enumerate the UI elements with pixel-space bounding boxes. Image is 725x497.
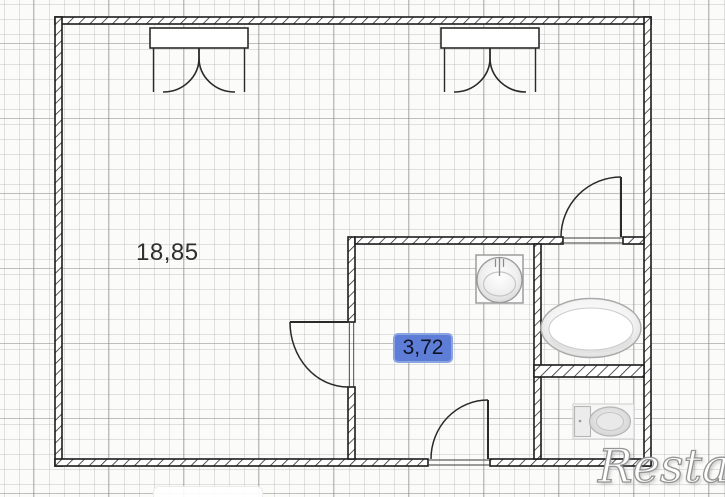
window-icon-left xyxy=(150,28,248,92)
toilet-icon xyxy=(573,404,634,439)
room-area-label-main: 18,85 xyxy=(136,239,199,267)
wall-hall-top-left xyxy=(355,237,563,244)
room-area-label-hall-selected[interactable]: 3,72 xyxy=(393,333,453,363)
fixtures xyxy=(476,255,641,439)
wall-bathroom-left xyxy=(534,244,541,459)
wall-bath-toilet-divider xyxy=(534,365,644,377)
floorplan-canvas: 18,85 3,72 Restate xyxy=(0,0,725,497)
watermark-logo: Restate xyxy=(598,441,725,492)
windows xyxy=(150,28,539,92)
wall-exterior-left xyxy=(55,17,62,466)
bathtub-icon xyxy=(541,299,641,358)
door-swing-icon-hall xyxy=(290,322,354,387)
window-icon-right xyxy=(441,28,539,92)
door-swing-icon-bathroom xyxy=(561,177,623,243)
sink-icon xyxy=(476,255,523,303)
wall-exterior-right xyxy=(644,17,651,466)
room-area-label-hall-text: 3,72 xyxy=(403,336,444,360)
wall-exterior-top xyxy=(55,17,651,24)
door-swing-icon-entrance xyxy=(428,400,490,465)
floorplan-drawing xyxy=(0,0,725,497)
wall-hall-left-lower xyxy=(348,387,355,459)
partial-label-box xyxy=(153,486,263,497)
wall-exterior-bottom-left xyxy=(55,459,428,466)
wall-hall-top-right xyxy=(623,237,644,244)
wall-hall-left-upper xyxy=(348,237,355,322)
